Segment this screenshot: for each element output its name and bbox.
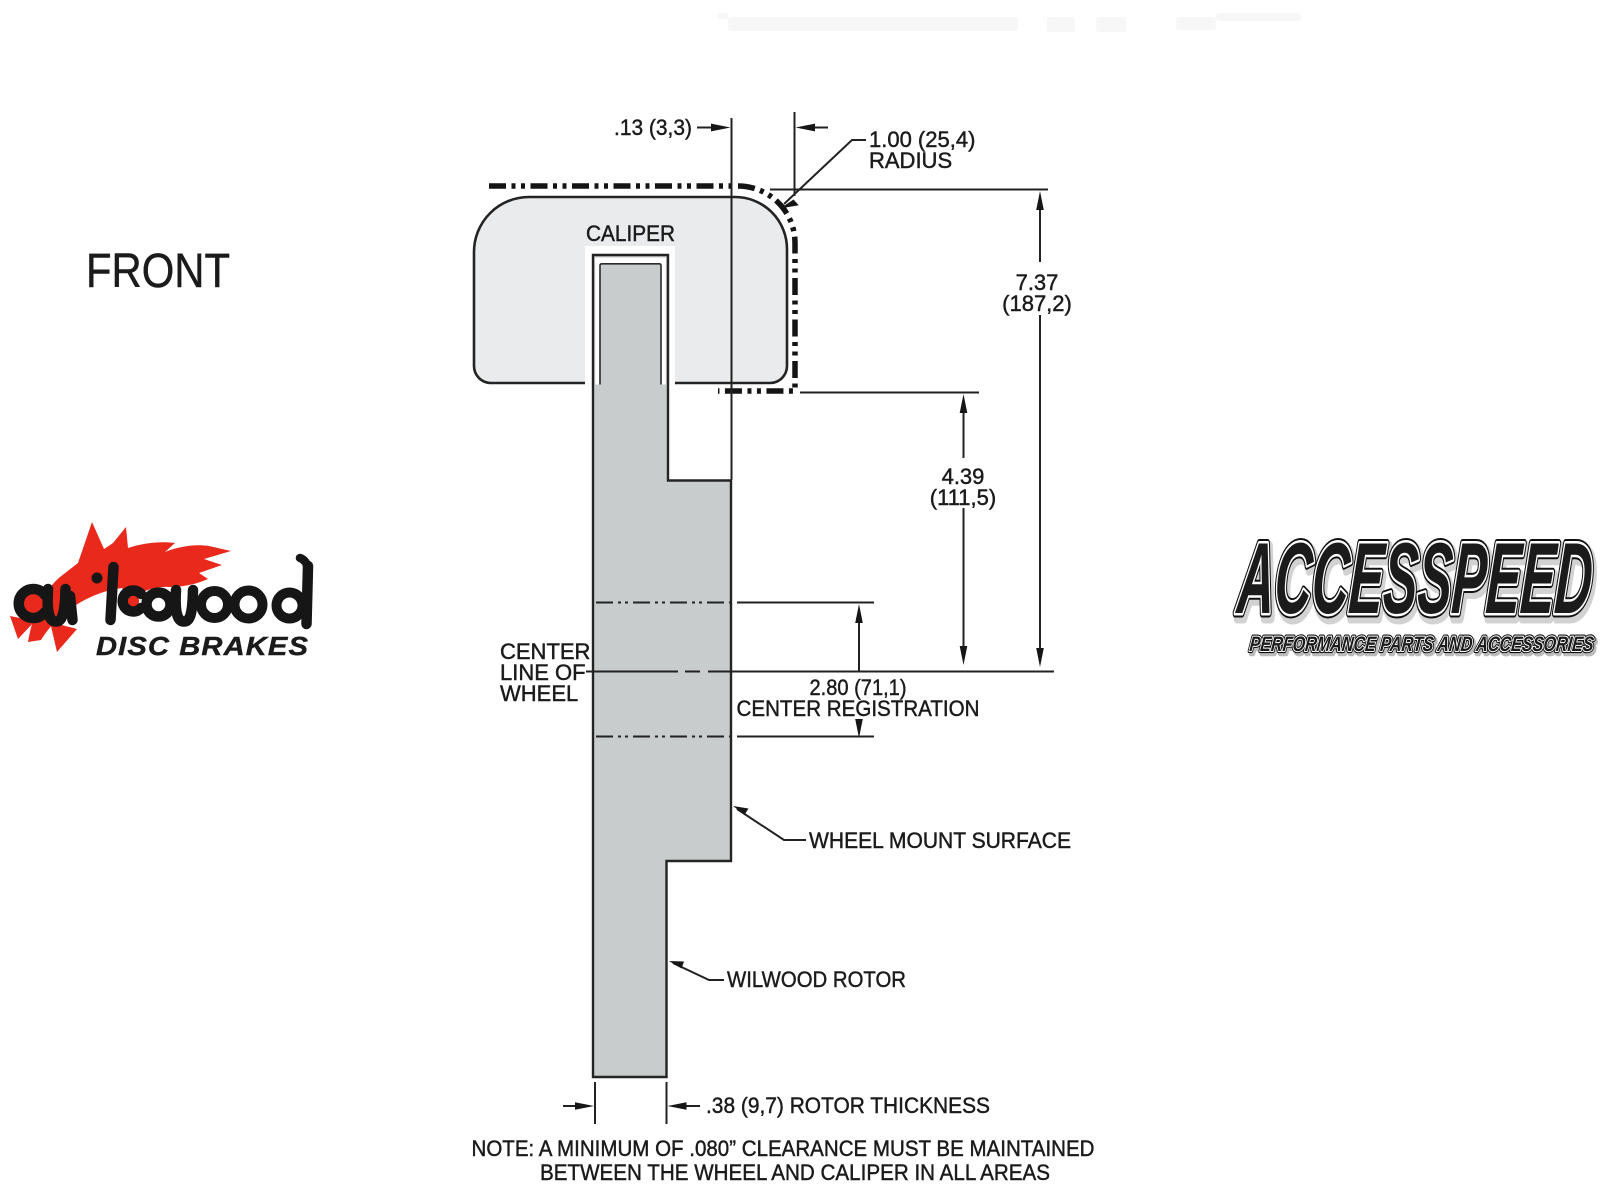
svg-text:.38 (9,7) ROTOR THICKNESS: .38 (9,7) ROTOR THICKNESS — [706, 1093, 990, 1118]
svg-text:(111,5): (111,5) — [930, 485, 996, 510]
svg-text:CENTER REGISTRATION: CENTER REGISTRATION — [737, 696, 980, 721]
svg-text:WHEEL MOUNT SURFACE: WHEEL MOUNT SURFACE — [809, 828, 1071, 853]
svg-text:BETWEEN THE WHEEL AND CALIPER: BETWEEN THE WHEEL AND CALIPER IN ALL ARE… — [540, 1160, 1050, 1185]
svg-text:RADIUS: RADIUS — [869, 148, 952, 173]
svg-text:PERFORMANCE PARTS AND ACCESSOR: PERFORMANCE PARTS AND ACCESSORIES — [1248, 633, 1594, 656]
svg-text:WILWOOD ROTOR: WILWOOD ROTOR — [727, 967, 906, 992]
svg-text:CALIPER: CALIPER — [586, 221, 675, 246]
svg-text:WHEEL: WHEEL — [500, 681, 578, 706]
svg-text:(187,2): (187,2) — [1002, 291, 1072, 316]
svg-text:.13 (3,3): .13 (3,3) — [614, 115, 692, 140]
svg-text:FRONT: FRONT — [86, 245, 230, 298]
svg-text:ACCESSPEED: ACCESSPEED — [1233, 522, 1596, 635]
svg-text:NOTE: A MINIMUM OF .080” CLEAR: NOTE: A MINIMUM OF .080” CLEARANCE MUST … — [472, 1136, 1095, 1161]
svg-text:DISC BRAKES: DISC BRAKES — [96, 631, 309, 661]
